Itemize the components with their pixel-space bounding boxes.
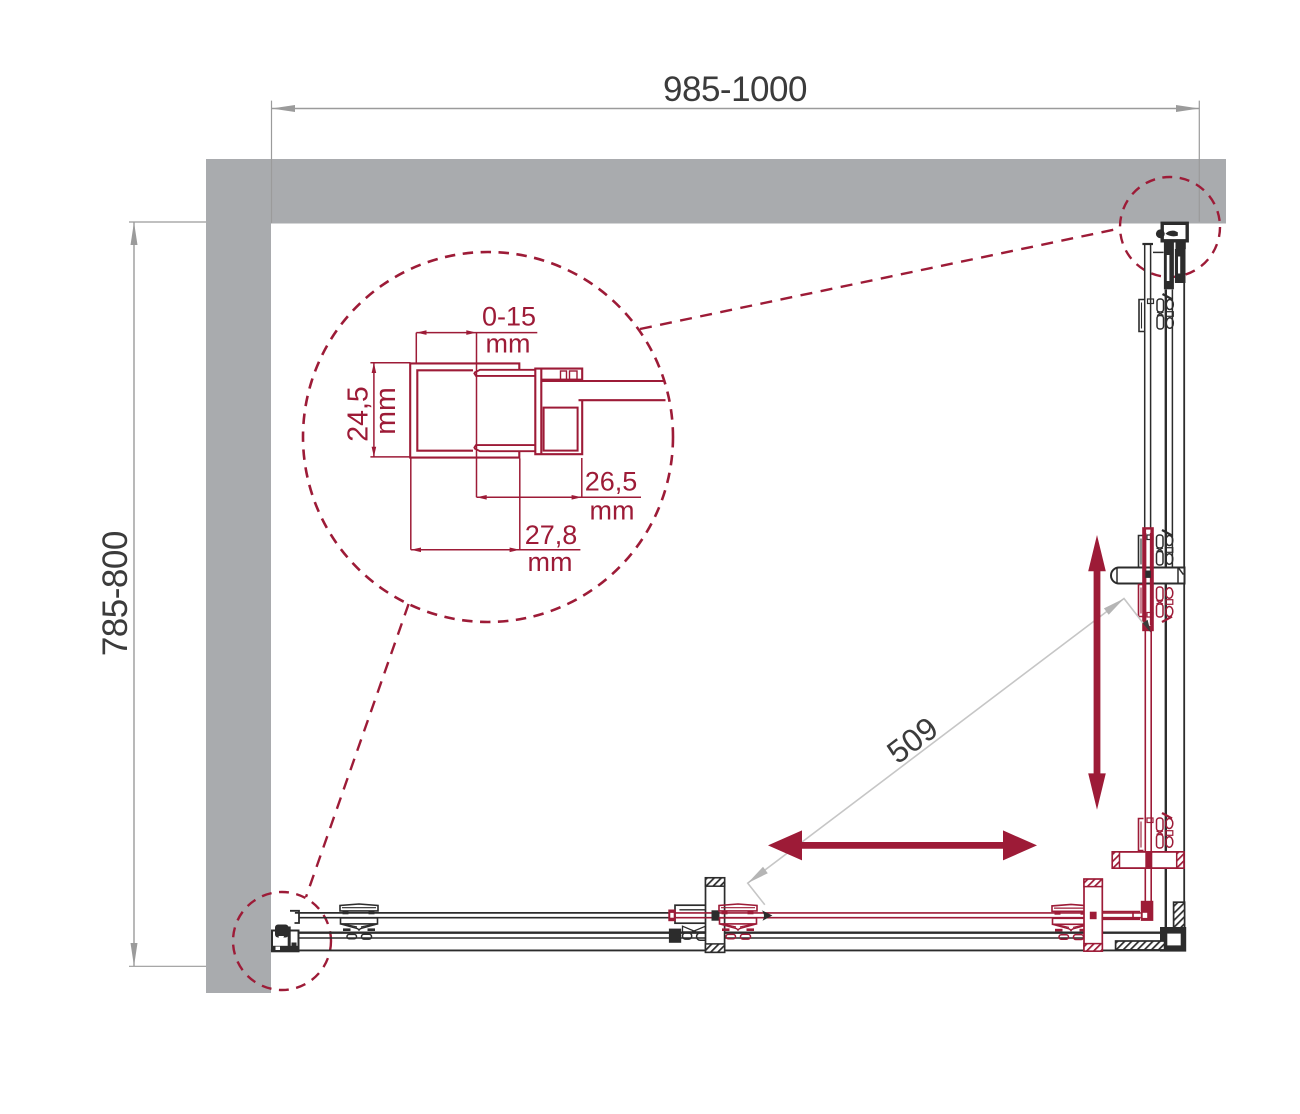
svg-text:985-1000: 985-1000 [663,70,807,109]
svg-text:0-15: 0-15 [482,302,536,332]
svg-text:27,8: 27,8 [525,520,578,550]
svg-text:mm: mm [486,329,531,359]
svg-text:26,5: 26,5 [585,467,638,497]
svg-text:mm: mm [528,547,573,577]
svg-text:mm: mm [370,387,402,434]
svg-text:785-800: 785-800 [96,531,135,656]
svg-text:mm: mm [590,496,635,526]
